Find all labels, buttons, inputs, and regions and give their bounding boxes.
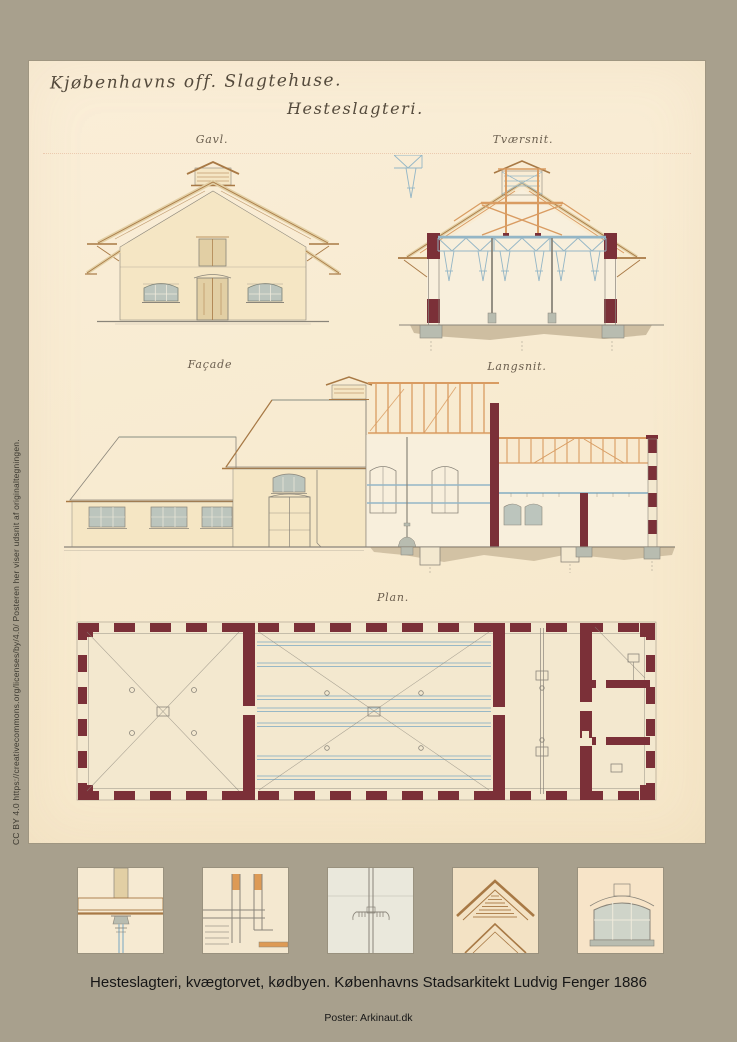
detail-thumbnail-timber-joint — [203, 868, 288, 953]
gavl-elevation-drawing — [85, 157, 341, 335]
aged-dotted-rule — [43, 153, 691, 154]
label-langsnit: Langsnit. — [487, 360, 546, 373]
detail-thumbnail-gable-louver — [453, 868, 538, 953]
label-tvaersnit: Tværsnit. — [493, 133, 554, 146]
label-facade: Façade — [188, 358, 233, 371]
drawing-sheet: Kjøbenhavns off. Slagtehuse. Hesteslagte… — [29, 61, 705, 843]
sheet-title: Kjøbenhavns off. Slagtehuse. — [50, 70, 342, 93]
detail-thumbnail-column-capital — [78, 868, 163, 953]
cross-section-drawing — [394, 155, 670, 355]
license-text: CC BY 4.0 https://creativecommons.org/li… — [11, 553, 21, 845]
poster-caption: Hesteslagteri, kvægtorvet, kødbyen. Købe… — [0, 974, 737, 991]
sheet-subtitle: Hesteslagteri. — [287, 99, 424, 118]
facade-and-longitudinal-section-drawing — [64, 375, 679, 575]
detail-thumbnail-rail-hanger — [328, 868, 413, 953]
detail-thumbnail-arched-window — [578, 868, 663, 953]
poster-credit: Poster: Arkinaut.dk — [0, 1012, 737, 1024]
poster-canvas: Kjøbenhavns off. Slagtehuse. Hesteslagte… — [0, 0, 737, 1042]
label-gavl: Gavl. — [196, 133, 229, 146]
label-plan: Plan. — [377, 591, 409, 604]
floor-plan-drawing — [75, 618, 660, 804]
